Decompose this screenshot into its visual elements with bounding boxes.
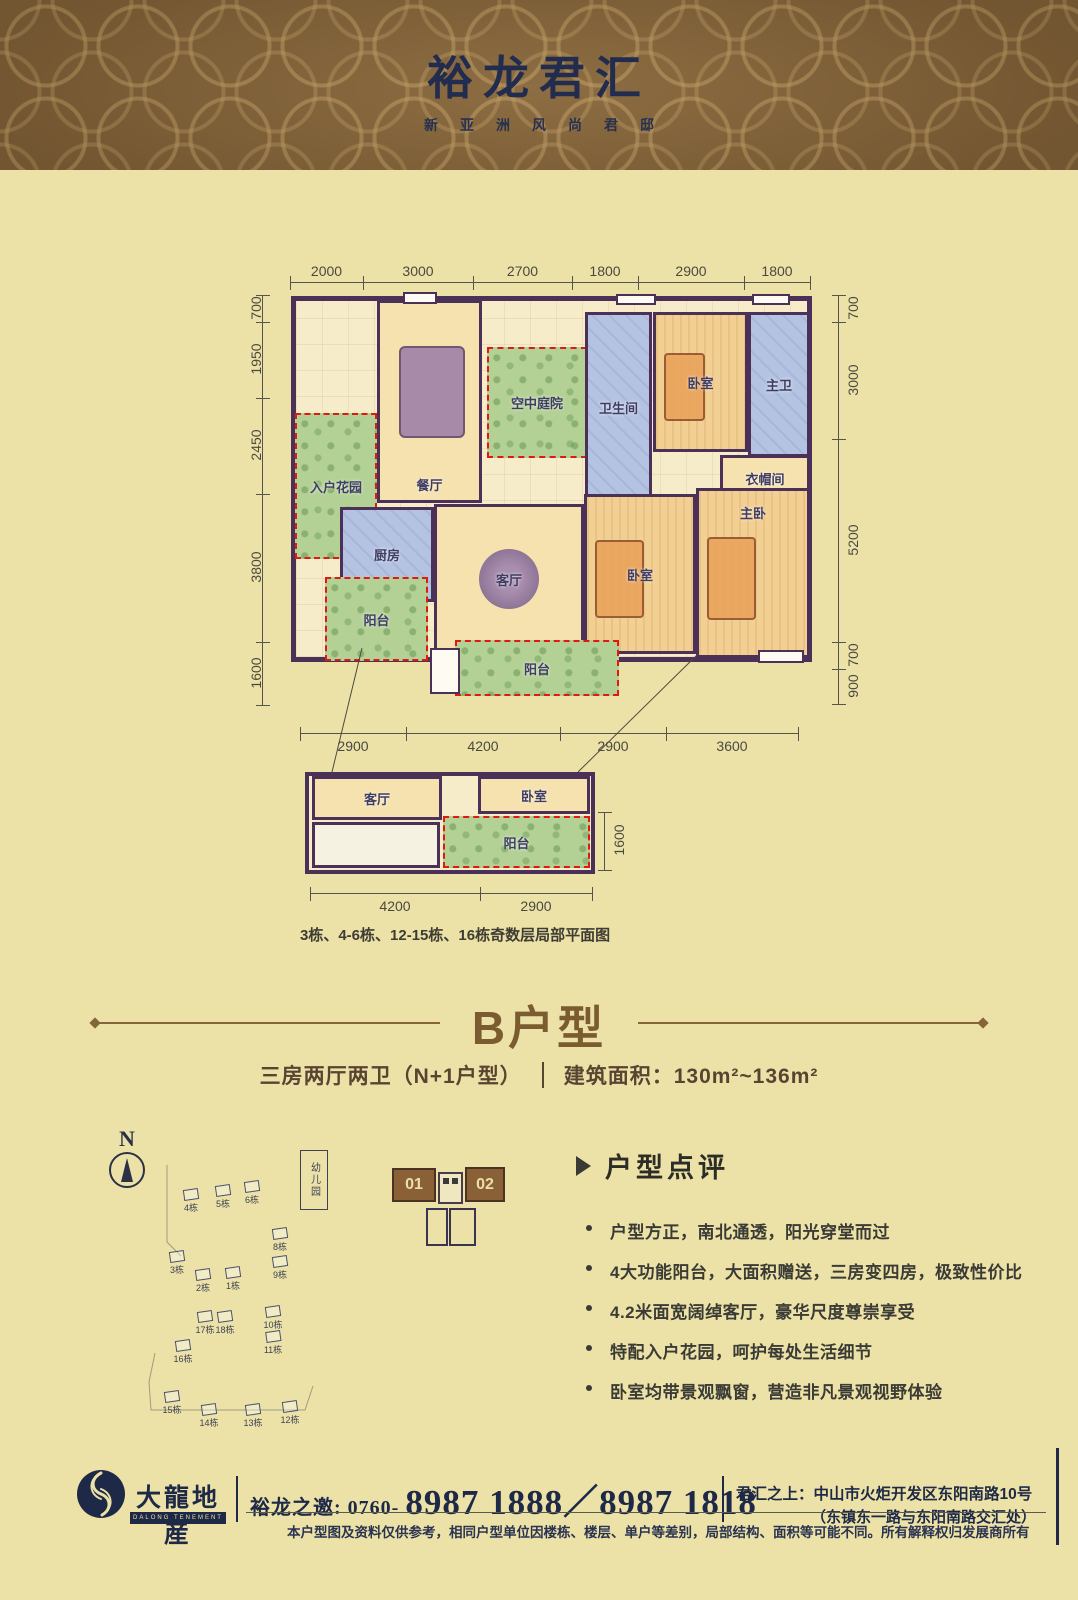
building-marker: 17栋	[195, 1311, 214, 1336]
building-label: 17栋	[195, 1325, 214, 1335]
building-marker: 9栋	[273, 1256, 288, 1281]
phone-label: 裕龙之邀: 0760-	[250, 1491, 399, 1520]
dimension-label: 2900	[638, 263, 744, 279]
title-rule-right	[638, 1022, 983, 1024]
building-label: 8栋	[273, 1242, 287, 1252]
dimension-segment: 1950	[262, 322, 263, 398]
dimension-segment: 3000	[838, 322, 839, 439]
unit-outline-left	[426, 1208, 448, 1246]
review-heading: 户型点评	[576, 1146, 729, 1185]
building-label: 13栋	[243, 1418, 262, 1428]
dimension-segment: 700	[262, 295, 263, 322]
footer-rule	[246, 1512, 1046, 1513]
address-line-1: 君汇之上：中山市火炬开发区东阳南路10号	[736, 1482, 1036, 1504]
unit-position-diagram: 01 02	[385, 1158, 515, 1256]
dimension-segment: 3800	[262, 494, 263, 642]
unit-outline-right	[449, 1208, 476, 1246]
partial-plan-caption: 3栋、4-6栋、12-15栋、16栋奇数层局部平面图	[300, 924, 820, 945]
partial-plan-room: 客厅	[312, 776, 442, 820]
footer-divider-2	[722, 1476, 724, 1522]
unit-block-01: 01	[392, 1168, 436, 1202]
room-label: 客厅	[364, 789, 390, 808]
floor-plan-room	[758, 650, 804, 663]
subtitle-divider	[542, 1062, 544, 1088]
footer-edge-line	[1056, 1448, 1059, 1545]
building-marker: 6栋	[245, 1181, 260, 1206]
dimension-segment: 5200	[838, 439, 839, 642]
building-marker: 4栋	[184, 1189, 199, 1214]
project-slogan: 新亚洲风尚君邸	[0, 115, 1078, 135]
partial-plan-room: 阳台	[443, 816, 590, 868]
elevator-core	[438, 1172, 463, 1204]
dimension-label: 1600	[611, 810, 627, 870]
building-label: 5栋	[216, 1199, 230, 1209]
developer-logo-icon	[76, 1466, 128, 1524]
floor-plan-room	[752, 294, 790, 305]
dimension-label: 700	[845, 278, 861, 338]
dimension-label: 2900	[480, 898, 592, 914]
dimension-segment: 700	[838, 642, 839, 669]
floor-plan-room	[403, 292, 437, 304]
room-label: 厨房	[374, 545, 400, 564]
floor-plan-room: 卫生间	[585, 312, 652, 502]
developer-name-en: DALONG TENEMENT	[130, 1512, 226, 1524]
dimension-segment: 2450	[262, 398, 263, 494]
building-marker: 14栋	[199, 1404, 218, 1429]
room-label: 阳台	[524, 659, 550, 678]
building-label: 10栋	[263, 1320, 282, 1330]
title-rule-left	[95, 1022, 440, 1024]
room-label: 卧室	[627, 565, 653, 584]
dimension-label: 2450	[248, 415, 264, 475]
floor-plan-room: 餐厅	[377, 300, 482, 503]
review-bullet-text: 4.2米面宽阔绰客厅，豪华尺度尊崇享受	[610, 1303, 915, 1322]
floor-plan-room: 主卧	[696, 488, 810, 658]
floor-plan-room: 空中庭院	[487, 347, 587, 458]
floor-plan-room: 卧室	[584, 494, 696, 654]
floor-plan-room: 客厅	[434, 504, 584, 654]
header-banner: 裕龙君汇 新亚洲风尚君邸	[0, 0, 1078, 170]
building-label: 16栋	[173, 1354, 192, 1364]
building-label: 9栋	[273, 1270, 287, 1280]
phone-numbers: 8987 1888／8987 1818	[405, 1474, 757, 1525]
dimension-label: 1950	[248, 329, 264, 389]
review-bullet: 4大功能阳台，大面积赠送，三房变四房，极致性价比	[582, 1258, 1022, 1283]
building-label: 1栋	[226, 1281, 240, 1291]
dimension-segment: 2700	[473, 282, 572, 283]
dimension-label: 1800	[572, 263, 638, 279]
disclaimer-text: 本户型图及资料仅供参考，相同户型单位因楼栋、楼层、单户等差别，局部结构、面积等可…	[287, 1521, 1057, 1541]
dimension-label: 1800	[744, 263, 810, 279]
dimension-label: 3800	[248, 537, 264, 597]
building-label: 4栋	[184, 1203, 198, 1213]
building-label: 12栋	[280, 1415, 299, 1425]
dimension-label: 2700	[473, 263, 572, 279]
dimension-label: 900	[845, 656, 861, 716]
dimension-segment: 4200	[310, 893, 480, 894]
building-marker: 12栋	[280, 1401, 299, 1426]
building-marker: 18栋	[215, 1311, 234, 1336]
building-marker: 8栋	[273, 1228, 288, 1253]
dimension-segment: 2900	[480, 893, 592, 894]
dimension-segment: 900	[838, 669, 839, 704]
building-marker: 3栋	[170, 1251, 185, 1276]
room-label: 卧室	[521, 786, 547, 805]
unit-block-02: 02	[465, 1167, 505, 1202]
room-label: 卫生间	[599, 398, 638, 417]
dimension-label: 1600	[248, 643, 264, 703]
dimension-segment: 2900	[638, 282, 744, 283]
floor-plan-room: 主卫	[748, 312, 810, 457]
review-bullet: 户型方正，南北通透，阳光穿堂而过	[582, 1218, 1022, 1243]
unit-type-subtitle: 三房两厅两卫（N+1户型） 建筑面积：130m²~136m²	[0, 1060, 1078, 1090]
kindergarten-block: 幼儿园	[300, 1150, 328, 1210]
building-label: 14栋	[199, 1418, 218, 1428]
building-label: 6栋	[245, 1195, 259, 1205]
building-marker: 10栋	[263, 1306, 282, 1331]
dimension-segment: 1800	[572, 282, 638, 283]
review-title: 户型点评	[605, 1146, 729, 1185]
review-bullet-text: 卧室均带景观飘窗，营造非凡景观视野体验	[610, 1383, 943, 1402]
dimension-label: 3000	[363, 263, 473, 279]
room-label: 阳台	[363, 610, 389, 629]
building-marker: 11栋	[264, 1331, 282, 1356]
building-marker: 5栋	[216, 1185, 231, 1210]
partial-plan-room: 卧室	[478, 776, 590, 814]
review-bullet-text: 特配入户花园，呵护每处生活细节	[610, 1343, 873, 1362]
review-bullet: 卧室均带景观飘窗，营造非凡景观视野体验	[582, 1378, 1022, 1403]
room-label: 衣帽间	[745, 469, 784, 488]
building-label: 18栋	[215, 1325, 234, 1335]
floor-plan-room	[616, 294, 656, 305]
building-marker: 1栋	[226, 1267, 241, 1292]
dimension-segment: 700	[838, 295, 839, 322]
dimension-segment: 1600	[604, 812, 605, 870]
room-label: 卧室	[687, 373, 713, 392]
building-marker: 16栋	[173, 1340, 192, 1365]
dimension-segment: 1800	[744, 282, 810, 283]
building-label: 2栋	[196, 1283, 210, 1293]
project-title: 裕龙君汇	[0, 42, 1078, 108]
room-label: 阳台	[503, 833, 529, 852]
unit-type-title: B户型	[0, 992, 1078, 1058]
leader-lines	[280, 640, 740, 780]
site-plan: N 幼儿园 4栋 5栋 6栋 3栋	[95, 1120, 350, 1420]
building-label: 15栋	[162, 1405, 181, 1415]
review-bullet: 4.2米面宽阔绰客厅，豪华尺度尊崇享受	[582, 1298, 1022, 1323]
triangle-bullet-icon	[576, 1156, 591, 1176]
building-label: 3栋	[170, 1265, 184, 1275]
floor-plan-room: 卧室	[653, 312, 748, 452]
review-bullet: 特配入户花园，呵护每处生活细节	[582, 1338, 1022, 1363]
building-marker: 15栋	[162, 1391, 181, 1416]
building-label: 11栋	[264, 1345, 282, 1355]
review-bullet-text: 户型方正，南北通透，阳光穿堂而过	[610, 1223, 890, 1242]
dimension-segment: 1600	[262, 642, 263, 705]
room-label: 餐厅	[416, 475, 442, 494]
dimension-segment: 3000	[363, 282, 473, 283]
unit-area: 建筑面积：130m²~136m²	[564, 1060, 819, 1090]
unit-spec: 三房两厅两卫（N+1户型）	[260, 1060, 522, 1090]
footer-divider-1	[236, 1476, 238, 1522]
room-label: 空中庭院	[511, 393, 563, 412]
dimension-label: 5200	[845, 510, 861, 570]
room-label: 入户花园	[310, 477, 362, 496]
dimension-segment: 2000	[290, 282, 363, 283]
contact-phone: 裕龙之邀: 0760- 8987 1888／8987 1818	[250, 1474, 757, 1525]
dimension-label: 2000	[290, 263, 363, 279]
partial-plan-room	[312, 822, 440, 868]
page: 裕龙君汇 新亚洲风尚君邸 入户花园 餐厅 空中庭院 卫生间 卧室	[0, 0, 1078, 1600]
review-bullet-list: 户型方正，南北通透，阳光穿堂而过 4大功能阳台，大面积赠送，三房变四房，极致性价…	[582, 1218, 1022, 1418]
dimension-label: 3000	[845, 350, 861, 410]
room-label: 客厅	[496, 570, 522, 589]
dimension-label: 4200	[310, 898, 480, 914]
building-marker: 13栋	[243, 1404, 262, 1429]
building-marker: 2栋	[196, 1269, 211, 1294]
room-label: 主卫	[766, 375, 792, 394]
room-label: 主卧	[740, 503, 766, 522]
review-bullet-text: 4大功能阳台，大面积赠送，三房变四房，极致性价比	[610, 1263, 1022, 1282]
